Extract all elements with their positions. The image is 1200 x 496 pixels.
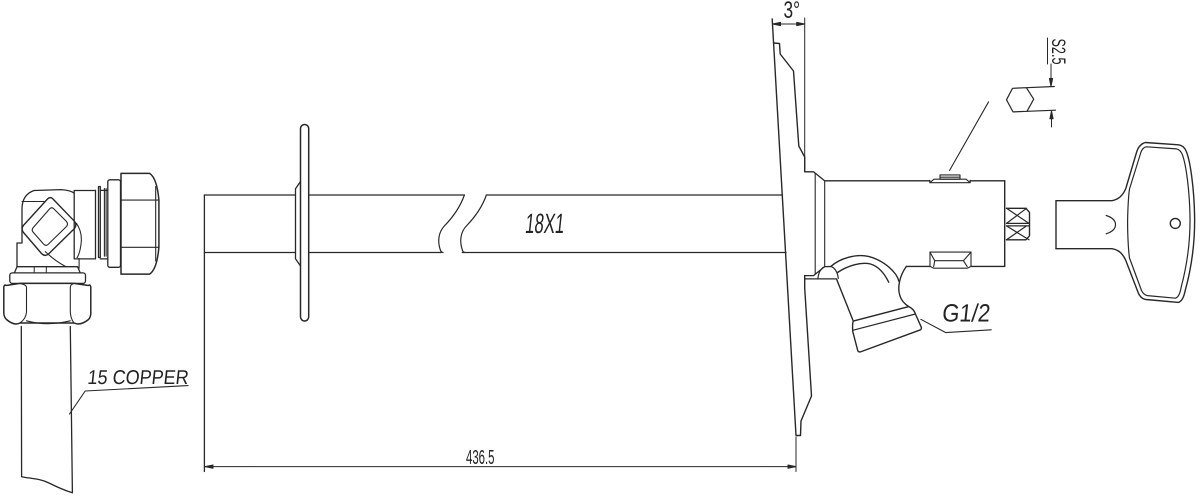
svg-text:15 COPPER: 15 COPPER — [86, 367, 189, 389]
svg-text:3°: 3° — [784, 0, 801, 24]
svg-text:436.5: 436.5 — [466, 447, 495, 469]
svg-text:S2.5: S2.5 — [1047, 39, 1068, 65]
svg-text:G1/2: G1/2 — [941, 300, 992, 328]
svg-text:18X1: 18X1 — [524, 208, 566, 239]
